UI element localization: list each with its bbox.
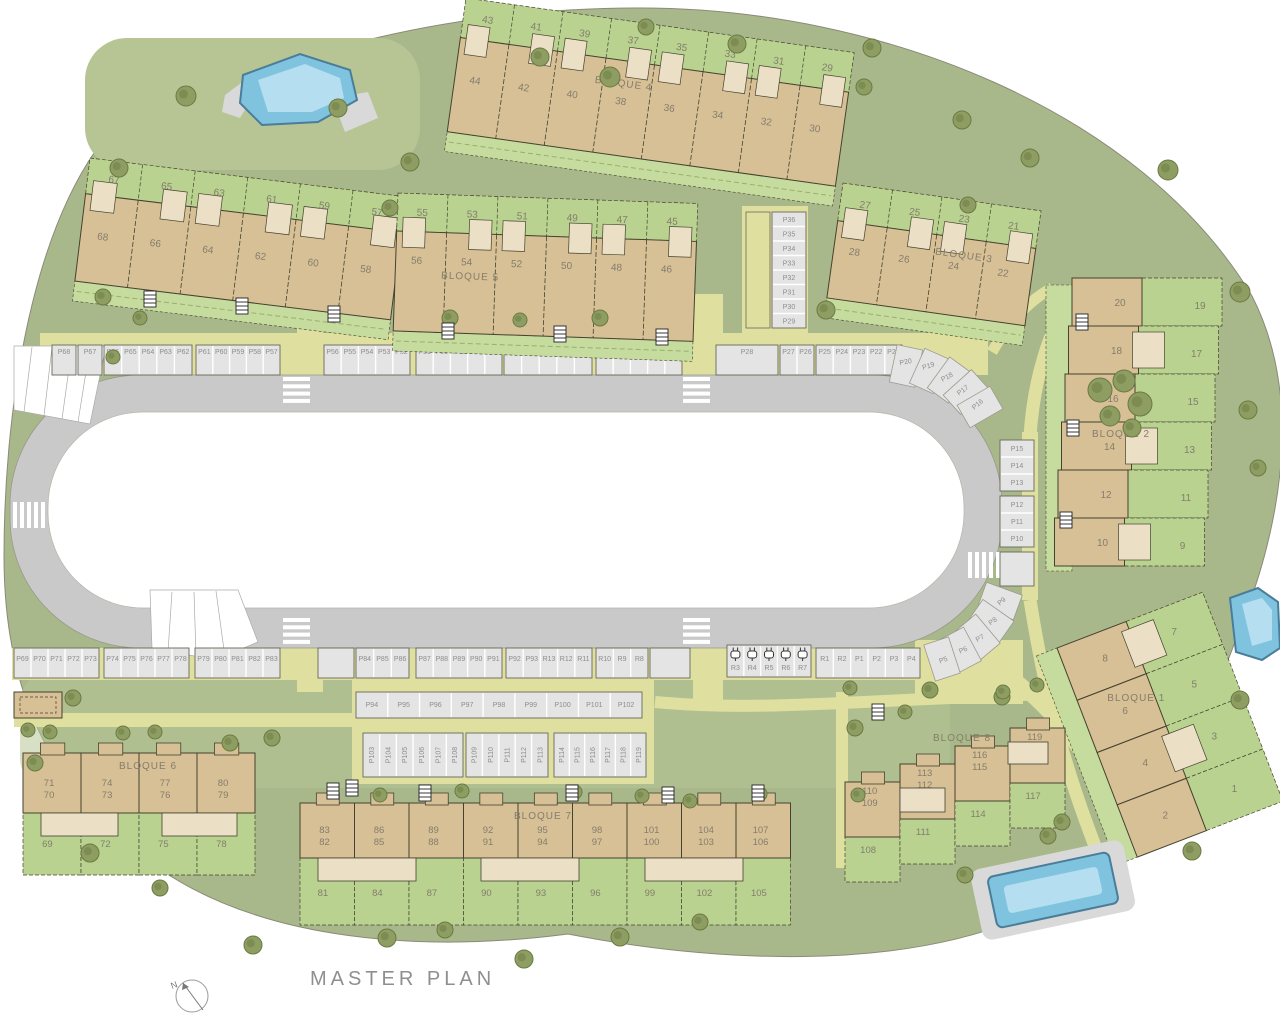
building-upper-footprint	[1006, 231, 1032, 264]
unit-garden-label: 51	[516, 211, 528, 222]
garden-plot	[900, 819, 955, 864]
unit-garden-label: 84	[372, 888, 383, 899]
unit-garden-label: 111	[916, 827, 930, 838]
block-bloque5: 555653545152495047484546BLOQUE 5	[392, 193, 697, 361]
parking-space-label: P65	[124, 349, 137, 356]
entry-porch	[534, 793, 557, 805]
crosswalk	[283, 384, 310, 388]
parking-space-label: P89	[453, 656, 466, 663]
tree-icon	[531, 48, 549, 66]
tree-icon	[264, 730, 280, 746]
parking-group: P92P93R13R12R11	[506, 648, 592, 678]
crosswalk	[683, 392, 710, 396]
unit-building-label: 26	[898, 254, 911, 267]
crosswalk	[683, 384, 710, 388]
parking-space-label: P75	[123, 656, 136, 663]
building-upper-footprint	[602, 224, 626, 255]
crosswalk	[683, 640, 710, 644]
tree-icon	[953, 111, 971, 129]
parking-space-label: R3	[731, 665, 740, 672]
entry-porch	[862, 772, 885, 784]
parking-space-label: P25	[818, 349, 831, 356]
tree-icon	[922, 682, 938, 698]
parking-space-label: P30	[783, 304, 796, 311]
crosswalk	[283, 377, 310, 381]
parking-space-label: P92	[508, 656, 521, 663]
parking-space-label: P14	[1011, 463, 1024, 470]
parking-space-label: R9	[618, 656, 627, 663]
tree-icon	[638, 19, 654, 35]
tree-icon	[600, 67, 620, 87]
parking-space-label: P114	[559, 747, 566, 763]
parking-space-label: P117	[605, 747, 612, 763]
parking-space-label: P59	[232, 349, 245, 356]
unit-garden-label: 53	[467, 209, 479, 220]
unit-building-label: 14	[1104, 442, 1116, 453]
tree-icon	[683, 794, 697, 808]
parking-space-label: P61	[198, 349, 211, 356]
parking-space-label: P29	[783, 318, 796, 325]
building-upper-footprint	[464, 25, 490, 58]
unit-garden-label: 7	[1171, 627, 1177, 638]
crosswalk	[34, 502, 38, 528]
tree-icon	[244, 936, 262, 954]
parking-space-label: P103	[369, 747, 376, 763]
parking-space-label: P31	[783, 289, 796, 296]
crosswalk	[283, 618, 310, 622]
road-inner-island	[48, 412, 964, 608]
parking-space-label: P98	[493, 702, 506, 709]
building-upper-footprint	[841, 208, 867, 241]
parking-space-label: P106	[419, 747, 426, 763]
unit-building-label: 98	[592, 825, 603, 836]
stairs-icon	[328, 306, 340, 322]
tree-icon	[43, 725, 57, 739]
stairs-icon	[662, 787, 674, 803]
unit-building-label: 97	[592, 837, 603, 848]
unit-garden-label: 23	[958, 213, 971, 226]
compass-north-label: N	[169, 979, 179, 991]
parking-space-label: P100	[554, 702, 570, 709]
parking-group: P27P26	[780, 345, 814, 375]
community-building	[14, 692, 62, 718]
tree-icon	[1128, 392, 1152, 416]
unit-building-label: 89	[428, 825, 439, 836]
parking-space-label: P64	[142, 349, 155, 356]
parking-space-label: P88	[436, 656, 449, 663]
parking-group: P74P75P76P77P78	[104, 648, 189, 678]
unit-building-label: 54	[461, 257, 473, 268]
crosswalk	[283, 633, 310, 637]
unit-building-label: 73	[102, 790, 113, 801]
unit-garden-label: 63	[213, 187, 226, 199]
parking-space-label: R1	[820, 656, 829, 663]
entry-porch	[156, 743, 180, 755]
parking-space-label: P3	[890, 656, 899, 663]
tree-icon	[222, 735, 238, 751]
tree-icon	[817, 301, 835, 319]
building-upper-footprint	[502, 221, 526, 252]
unit-building-label: 50	[561, 261, 573, 272]
parking-space-label: P101	[586, 702, 602, 709]
parking-group: P84P85P86	[356, 648, 409, 678]
garden-plot	[955, 801, 1010, 846]
unit-garden-label: 47	[616, 215, 628, 226]
tree-icon	[957, 867, 973, 883]
parking-group: P67	[78, 345, 102, 375]
unit-building-label: 18	[1111, 346, 1123, 357]
tree-icon	[148, 725, 162, 739]
building-upper-footprint	[1133, 332, 1165, 368]
parking-space-label: P77	[157, 656, 170, 663]
unit-garden-label: 59	[318, 200, 331, 212]
stairs-icon	[656, 329, 668, 345]
tree-icon	[176, 86, 196, 106]
unit-building-label: 2	[1163, 811, 1169, 822]
crosswalk	[283, 625, 310, 629]
parking-space-label: P85	[376, 656, 389, 663]
parking-space-label: R7	[798, 665, 807, 672]
unit-garden-label: 13	[1184, 445, 1196, 456]
unit-building-label: 92	[483, 825, 494, 836]
stairs-icon	[419, 785, 431, 801]
crosswalk	[20, 502, 24, 528]
tree-icon	[110, 159, 128, 177]
unit-building-label: 115	[972, 762, 987, 773]
unit-garden-label: 102	[696, 888, 712, 899]
tree-icon	[856, 79, 872, 95]
crosswalk	[683, 625, 710, 629]
unit-garden-label: 31	[772, 55, 785, 68]
unit-garden-label: 49	[566, 213, 578, 224]
parking-space-label: R2	[838, 656, 847, 663]
stairs-icon	[566, 785, 578, 801]
tree-icon	[21, 723, 35, 737]
unit-garden-label: 105	[751, 888, 767, 899]
stairs-icon	[1076, 314, 1088, 330]
tree-icon	[106, 350, 120, 364]
parking-space-label: P76	[140, 656, 153, 663]
tree-icon	[152, 880, 168, 896]
crosswalk	[13, 502, 17, 528]
parking-space-label: P105	[402, 747, 409, 763]
unit-building-label: 48	[611, 262, 623, 273]
parking-space-label: R8	[635, 656, 644, 663]
building-upper-footprint	[481, 858, 579, 881]
parking-space-label: P110	[488, 747, 495, 763]
tree-icon	[382, 200, 398, 216]
parking-space-label: R5	[765, 665, 774, 672]
parking-space-label: P2	[872, 656, 881, 663]
crosswalk	[683, 377, 710, 381]
parking-space-label: P70	[33, 656, 46, 663]
parking-space-label: P115	[575, 747, 582, 763]
parking-space-label: P119	[636, 747, 643, 763]
crosswalk	[683, 618, 710, 622]
parking-space-label: P60	[215, 349, 228, 356]
parking-space-label: P95	[397, 702, 410, 709]
unit-building-label: 12	[1100, 490, 1112, 501]
unit-garden-label: 45	[666, 216, 678, 227]
crosswalk	[975, 552, 979, 578]
parking-space-label: P104	[386, 747, 393, 763]
tree-icon	[843, 681, 857, 695]
building-upper-footprint	[160, 189, 187, 222]
parking-space-label: P4	[907, 656, 916, 663]
building-upper-footprint	[561, 38, 587, 71]
crosswalk	[283, 392, 310, 396]
unit-building-label: 22	[997, 267, 1010, 280]
parking-group: P12P11P10	[1000, 496, 1034, 547]
building	[1069, 326, 1139, 374]
crosswalk	[283, 399, 310, 403]
parking-space-label: P68	[58, 349, 71, 356]
parking-group: R1R2P1P2P3P4	[816, 648, 920, 678]
stairs-icon	[236, 298, 248, 314]
entry-porch	[1027, 718, 1050, 730]
unit-building-label: 94	[537, 837, 548, 848]
unit-building-label: 80	[218, 778, 229, 789]
building-upper-footprint	[820, 75, 846, 108]
tree-icon	[960, 197, 976, 213]
stairs-icon	[1060, 512, 1072, 528]
block-label: BLOQUE 2	[1092, 429, 1150, 440]
tree-icon	[95, 289, 111, 305]
parking-group: P103P104P105P106P107P108	[363, 733, 463, 777]
unit-building-label: 74	[102, 778, 113, 789]
unit-garden-label: 96	[590, 888, 601, 899]
parking-space-label: P87	[418, 656, 431, 663]
parking-space-label: P96	[429, 702, 442, 709]
parking-group	[650, 648, 690, 678]
stairs-icon	[1067, 420, 1079, 436]
parking-space-label: P71	[50, 656, 63, 663]
tree-icon	[1100, 406, 1120, 426]
tree-icon	[1123, 419, 1141, 437]
crosswalk	[683, 399, 710, 403]
unit-garden-label: 43	[481, 14, 494, 27]
parking-space-label: R4	[748, 665, 757, 672]
stairs-icon	[346, 780, 358, 796]
tree-icon	[373, 788, 387, 802]
tree-icon	[133, 311, 147, 325]
stairs-icon	[554, 326, 566, 342]
tree-icon	[851, 788, 865, 802]
parking-space-label: P67	[84, 349, 97, 356]
crosswalk	[982, 552, 986, 578]
parking-space-label: P97	[461, 702, 474, 709]
parking-space-label: P112	[521, 747, 528, 763]
building-upper-footprint	[1008, 742, 1048, 764]
unit-building-label: 58	[359, 264, 372, 276]
unit-garden-label: 29	[821, 62, 834, 75]
building-upper-footprint	[1119, 524, 1151, 560]
tree-icon	[898, 705, 912, 719]
parking-space-label: P26	[799, 349, 812, 356]
tree-icon	[1239, 401, 1257, 419]
unit-building-label: 66	[149, 238, 162, 250]
compass-circle	[176, 980, 208, 1012]
parking-space-label: P118	[621, 747, 628, 763]
parking-space-label: P72	[67, 656, 80, 663]
parking-space-label: P24	[836, 349, 849, 356]
stairs-icon	[752, 785, 764, 801]
unit-garden-label: 9	[1180, 541, 1186, 552]
entry-porch	[98, 743, 122, 755]
parking-space-label: R10	[598, 656, 611, 663]
parking-space-label: P113	[537, 747, 544, 763]
parking-space-label: P74	[106, 656, 119, 663]
parking-space-label: P32	[783, 275, 796, 282]
building-upper-footprint	[318, 858, 416, 881]
unit-building-label: 83	[319, 825, 330, 836]
unit-garden-label: 81	[318, 888, 329, 899]
unit-building-label: 86	[374, 825, 385, 836]
building-upper-footprint	[658, 52, 684, 85]
unit-building-label: 116	[972, 750, 987, 761]
unit-building-label: 52	[511, 259, 523, 270]
building-upper-footprint	[469, 220, 493, 251]
parking-space-label: P33	[783, 260, 796, 267]
parking-space-label: P109	[472, 747, 479, 763]
crosswalk	[989, 552, 993, 578]
parking-space-label: P34	[783, 246, 796, 253]
parking-space-label: P13	[1011, 480, 1024, 487]
parking-space-label: P22	[870, 349, 883, 356]
master-plan-page: P68P67P66P65P64P63P62P61P60P59P58P57P56P…	[0, 0, 1280, 1024]
parking-group: P94P95P96P97P98P99P100P101P102	[356, 692, 642, 718]
unit-building-label: 113	[917, 768, 932, 779]
tree-icon	[1113, 370, 1135, 392]
unit-garden-label: 5	[1191, 679, 1197, 690]
unit-building-label: 68	[96, 231, 109, 243]
unit-building-label: 70	[44, 790, 55, 801]
unit-building-label: 30	[808, 123, 821, 136]
parking-group: P28	[716, 345, 778, 375]
parking-space-label: P63	[159, 349, 172, 356]
parking-space-label: P35	[783, 231, 796, 238]
garden-plot	[1142, 278, 1222, 326]
parking-space-label: P23	[853, 349, 866, 356]
crosswalk	[27, 502, 31, 528]
unit-garden-label: 87	[427, 888, 438, 899]
entry-porch	[589, 793, 612, 805]
stairs-icon	[872, 704, 884, 720]
unit-building-label: 104	[698, 825, 714, 836]
unit-building-label: 71	[44, 778, 55, 789]
unit-building-label: 36	[663, 103, 676, 116]
building-upper-footprint	[723, 61, 749, 94]
compass: N	[169, 979, 208, 1012]
parking-group: P68	[52, 345, 76, 375]
unit-building-label: 106	[753, 837, 769, 848]
parking-group	[746, 212, 770, 328]
unit-garden-label: 35	[675, 42, 688, 55]
unit-building-label: 103	[698, 837, 714, 848]
unit-garden-label: 108	[860, 845, 876, 856]
parking-space-label: P94	[366, 702, 379, 709]
tree-icon	[692, 914, 708, 930]
tree-icon	[116, 726, 130, 740]
tree-icon	[401, 153, 419, 171]
unit-garden-label: 37	[627, 35, 640, 48]
parking-space-label: P28	[741, 349, 754, 356]
parking-group: P15P14P13	[1000, 440, 1034, 491]
tree-icon	[635, 789, 649, 803]
unit-building-label: 40	[566, 89, 579, 102]
building-upper-footprint	[900, 788, 945, 812]
building	[1058, 470, 1128, 518]
unit-building-label: 32	[760, 116, 773, 129]
unit-garden-label: 11	[1181, 493, 1192, 504]
parking-space-label: P111	[505, 747, 512, 762]
block-bloque6: 717069747372777675807978BLOQUE 6	[23, 743, 255, 875]
tree-icon	[592, 310, 608, 326]
tree-icon	[65, 690, 81, 706]
parking-group: P109P110P111P112P113	[466, 733, 548, 777]
parking-space-label: R12	[560, 656, 573, 663]
parking-space-label: P1	[855, 656, 864, 663]
parking-space-label: P84	[359, 656, 372, 663]
unit-garden-label: 78	[216, 839, 227, 850]
unit-building-label: 64	[202, 244, 215, 256]
unit-building-label: 4	[1142, 758, 1148, 769]
parking-space-label: R13	[543, 656, 556, 663]
parking-space-label: P10	[1011, 536, 1024, 543]
entry-porch	[40, 743, 64, 755]
unit-garden-label: 3	[1212, 732, 1218, 743]
unit-garden-label: 75	[158, 839, 169, 850]
block-label: BLOQUE 1	[1107, 693, 1165, 704]
block-label: BLOQUE 6	[119, 761, 177, 772]
unit-building-label: 8	[1102, 654, 1108, 665]
tree-icon	[1250, 460, 1266, 476]
tree-icon	[1231, 691, 1249, 709]
stairs-icon	[327, 783, 339, 799]
building-upper-footprint	[265, 202, 292, 235]
parking-group: R10R9R8	[596, 648, 648, 678]
parking-space-label: P78	[174, 656, 187, 663]
unit-building-label: 77	[160, 778, 171, 789]
tree-icon	[1230, 282, 1250, 302]
crosswalk	[996, 552, 1000, 578]
unit-building-label: 62	[254, 251, 267, 263]
block-label: BLOQUE 7	[514, 811, 572, 822]
garden-plot	[1128, 470, 1208, 518]
tree-icon	[847, 720, 863, 736]
unit-garden-label: 55	[417, 208, 429, 219]
parking-space-label: P82	[248, 656, 261, 663]
parking-group: P69P70P71P72P73	[14, 648, 99, 678]
tree-icon	[863, 39, 881, 57]
unit-garden-label: 25	[908, 207, 921, 220]
entry-porch	[917, 754, 940, 766]
crosswalk	[41, 502, 45, 528]
parking-group: P61P60P59P58P57	[196, 345, 280, 375]
unit-building-label: 107	[753, 825, 769, 836]
building-upper-footprint	[626, 47, 652, 80]
parking-space-label: P53	[378, 349, 391, 356]
block-label: BLOQUE 8	[933, 733, 991, 744]
parking-space-label: P56	[326, 349, 339, 356]
unit-garden-label: 21	[1007, 220, 1020, 233]
parking-space-label: P36	[783, 217, 796, 224]
unit-garden-label: 65	[160, 181, 173, 193]
unit-building-label: 38	[614, 96, 627, 109]
tree-icon	[513, 313, 527, 327]
parking-space-label: P99	[525, 702, 538, 709]
unit-building-label: 82	[319, 837, 330, 848]
